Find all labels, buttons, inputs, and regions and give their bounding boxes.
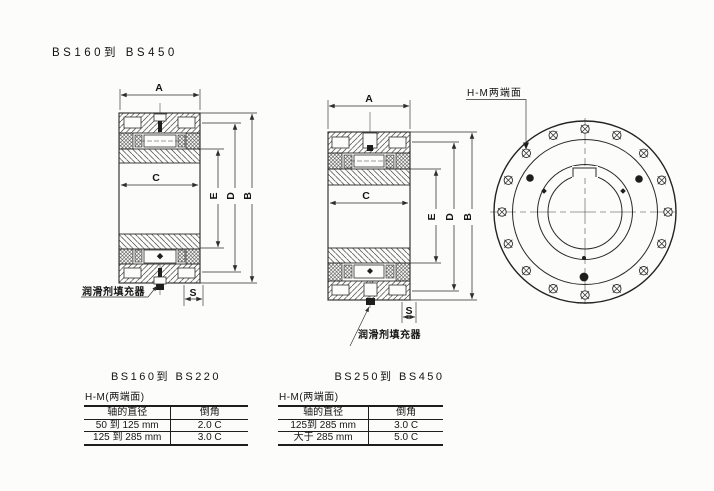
front-view: H-M两端面 [466, 86, 680, 307]
dim-label-d-middle: D [444, 213, 456, 221]
table-subtitle: H-M(两端面) [279, 388, 443, 403]
dim-label-e-middle: E [426, 213, 438, 220]
dim-label-s-left: S [189, 287, 196, 299]
small-dot [582, 256, 586, 260]
chamfer-table: 轴的直径 倒角 50 到 125 mm 2.0 C 125 到 285 mm 3… [84, 405, 248, 446]
cell-chamfer: 2.0 C [171, 419, 248, 432]
dim-label-a-middle: A [365, 93, 373, 105]
bolt-hole [504, 240, 512, 248]
dim-label-e-left: E [208, 192, 220, 199]
filled-plug [635, 175, 643, 183]
hm-faces-label: H-M两端面 [467, 86, 522, 99]
bolt-hole [658, 240, 666, 248]
cell-chamfer: 3.0 C [369, 419, 443, 432]
table-row: 大于 285 mm 5.0 C [278, 432, 443, 445]
dim-label-c-middle: C [362, 190, 370, 202]
bolt-hole [664, 208, 672, 216]
dim-label-s-middle: S [405, 305, 412, 317]
cell-diameter: 125 到 285 mm [84, 432, 171, 445]
table-row: 50 到 125 mm 2.0 C [84, 419, 248, 432]
table-title: BS160到 BS220 [84, 368, 248, 384]
bolt-hole [658, 176, 666, 184]
filled-plug [526, 174, 534, 182]
bolt-hole [498, 208, 506, 216]
col-header-chamfer: 倒角 [369, 406, 443, 419]
table-row: 125到 285 mm 3.0 C [278, 419, 443, 432]
lubricant-filler-label-left: 润滑剂填充器 [82, 285, 145, 298]
cell-diameter: 大于 285 mm [278, 432, 369, 445]
bolt-hole [504, 176, 512, 184]
technical-drawing-page: BS160到 BS450 A [0, 0, 714, 491]
col-header-chamfer: 倒角 [171, 406, 248, 419]
dim-label-b-middle: B [462, 213, 474, 221]
bolt-hole [613, 131, 621, 139]
cell-chamfer: 5.0 C [369, 432, 443, 445]
cell-diameter: 50 到 125 mm [84, 419, 171, 432]
table-block-bs160-bs220: BS160到 BS220 H-M(两端面) 轴的直径 倒角 50 到 125 m… [84, 368, 248, 446]
dim-label-d-left: D [225, 192, 237, 200]
keyway [572, 166, 598, 178]
cell-diameter: 125到 285 mm [278, 419, 369, 432]
grease-nipple-bottom [364, 283, 377, 305]
key-mark [541, 188, 547, 194]
bolt-hole [522, 149, 530, 157]
middle-section-view: A C [328, 93, 477, 346]
bolt-hole [581, 125, 589, 133]
bolt-hole [581, 291, 589, 299]
cell-chamfer: 3.0 C [171, 432, 248, 445]
lubricant-filler-label-middle: 润滑剂填充器 [358, 328, 421, 341]
table-title: BS250到 BS450 [307, 368, 472, 384]
bolt-hole [613, 285, 621, 293]
bolt-hole [522, 267, 530, 275]
left-section-view: A C [81, 82, 257, 306]
table-subtitle: H-M(两端面) [85, 388, 248, 403]
bolt-hole [640, 267, 648, 275]
col-header-shaft-diameter: 轴的直径 [84, 406, 171, 419]
dim-label-c-left: C [152, 172, 160, 184]
dim-label-a-left: A [155, 82, 163, 94]
table-block-bs250-bs450: BS250到 BS450 H-M(两端面) 轴的直径 倒角 125到 285 m… [278, 368, 443, 446]
bolt-hole [549, 131, 557, 139]
bolt-hole [640, 149, 648, 157]
col-header-shaft-diameter: 轴的直径 [278, 406, 369, 419]
key-mark [620, 188, 626, 194]
filled-plug [580, 273, 589, 282]
dim-label-b-left: B [242, 192, 254, 200]
chamfer-table: 轴的直径 倒角 125到 285 mm 3.0 C 大于 285 mm 5.0 … [278, 405, 443, 446]
bolt-hole [549, 285, 557, 293]
grease-plug-top [363, 133, 377, 151]
table-row: 125 到 285 mm 3.0 C [84, 432, 248, 445]
leader-arrow [523, 143, 529, 150]
